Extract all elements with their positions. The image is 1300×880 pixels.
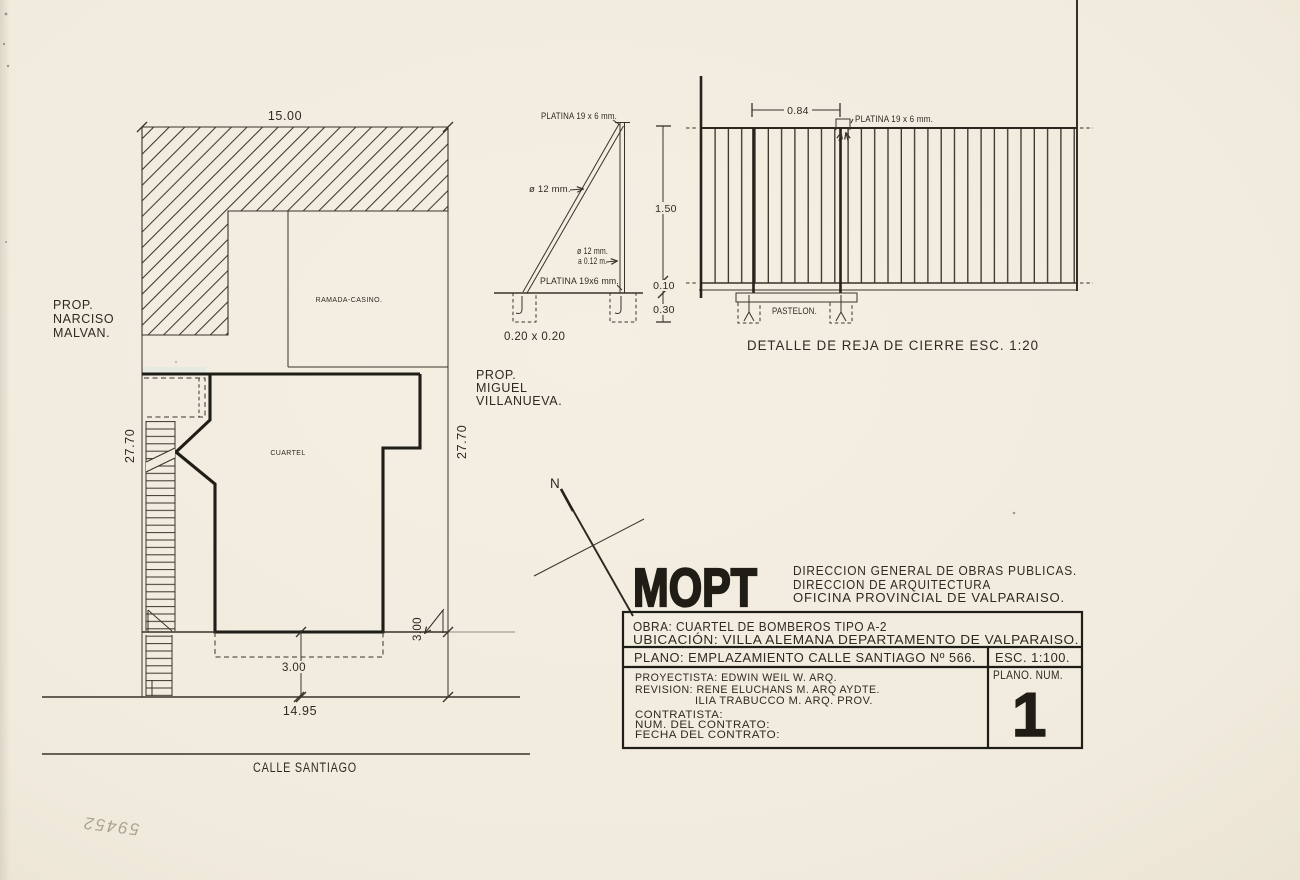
side-footing-size-label: 0.20 x 0.20	[504, 331, 565, 343]
svg-text:VILLANUEVA.: VILLANUEVA.	[476, 394, 562, 408]
stairs-strip	[146, 421, 175, 696]
svg-text:NARCISO: NARCISO	[53, 312, 114, 326]
fence-bars	[704, 128, 1075, 283]
ubicacion-row: UBICACIÓN: VILLA ALEMANA DEPARTAMENTO DE…	[633, 632, 1079, 647]
svg-text:FECHA DEL CONTRATO:: FECHA DEL CONTRATO:	[635, 729, 780, 741]
svg-text:3.00: 3.00	[412, 617, 424, 641]
svg-text:PROYECTISTA: EDWIN WEIL W. ARQ: PROYECTISTA: EDWIN WEIL W. ARQ.	[635, 672, 837, 684]
dimension-frontage: 14.95	[283, 704, 317, 718]
scan-edge-shadow	[0, 0, 10, 880]
cuartel-label: CUARTEL	[270, 450, 305, 457]
front-platina-label: PLATINA 19 x 6 mm.	[855, 114, 933, 125]
svg-text:MIGUEL: MIGUEL	[476, 381, 528, 395]
plano-row: PLANO: EMPLAZAMIENTO CALLE SANTIAGO Nº 5…	[634, 651, 976, 665]
svg-text:PROP.: PROP.	[53, 298, 93, 312]
svg-text:MALVAN.: MALVAN.	[53, 326, 110, 340]
svg-text:1.50: 1.50	[655, 203, 677, 215]
svg-text:0.10: 0.10	[653, 280, 675, 292]
street-name-label: CALLE SANTIAGO	[253, 760, 357, 775]
escala-cell: ESC. 1:100.	[995, 651, 1070, 665]
scan-highlight-strip	[142, 367, 206, 373]
svg-text:0.30: 0.30	[653, 304, 675, 316]
detail-caption: DETALLE DE REJA DE CIERRE ESC. 1:20	[747, 338, 1039, 353]
svg-text:15.00: 15.00	[268, 109, 302, 123]
drawing-canvas: RAMADA-CASINO. CUARTEL	[0, 0, 1300, 880]
dimension-depth-right: 27.70	[455, 425, 469, 459]
side-bar-spacing-label: a 0.12 m.	[578, 256, 607, 267]
mopt-logo: MOPT	[633, 558, 757, 618]
scanned-blueprint-sheet: RAMADA-CASINO. CUARTEL	[0, 0, 1300, 880]
obra-row: OBRA: CUARTEL DE BOMBEROS TIPO A-2	[633, 620, 887, 634]
svg-text:ILIA TRABUCCO M. ARQ. PROV.: ILIA TRABUCCO M. ARQ. PROV.	[695, 695, 873, 707]
north-label: N	[550, 476, 561, 491]
plano-num-value: 1	[1012, 681, 1046, 750]
svg-text:0.84: 0.84	[787, 105, 809, 117]
pastelon-label: PASTELON.	[772, 306, 817, 317]
svg-text:PROP.: PROP.	[476, 368, 516, 382]
side-bar-diameter-label: ø 12 mm.	[529, 184, 571, 195]
ramada-casino-label: RAMADA-CASINO.	[316, 297, 383, 304]
side-platina-top-label: PLATINA 19 x 6 mm.	[541, 111, 617, 122]
side-platina-bottom-label: PLATINA 19x6 mm.	[540, 276, 619, 287]
svg-text:3.00: 3.00	[282, 662, 306, 674]
svg-text:DIRECCION GENERAL DE OBRAS PUB: DIRECCION GENERAL DE OBRAS PUBLICAS.	[793, 563, 1077, 578]
dimension-depth-left: 27.70	[123, 429, 137, 463]
svg-text:OFICINA PROVINCIAL DE VALPARAI: OFICINA PROVINCIAL DE VALPARAISO.	[793, 590, 1065, 605]
